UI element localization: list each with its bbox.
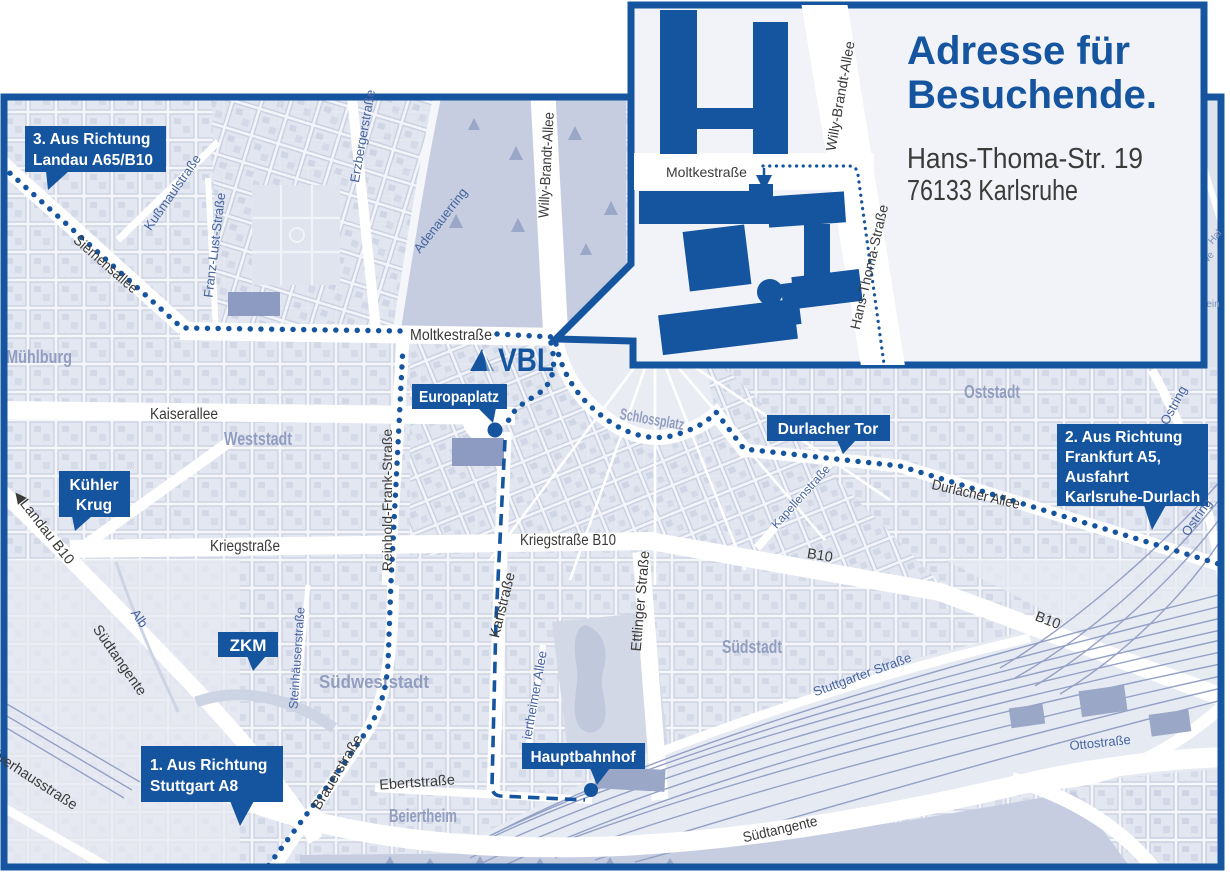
svg-text:VBL: VBL [498, 342, 554, 378]
svg-text:Krug: Krug [76, 497, 112, 514]
svg-text:2. Aus Richtung: 2. Aus Richtung [1065, 429, 1182, 446]
svg-text:Südstadt: Südstadt [722, 637, 782, 657]
svg-text:Beiertheim: Beiertheim [389, 806, 457, 826]
svg-text:Kriegstraße B10: Kriegstraße B10 [520, 532, 616, 549]
svg-text:1. Aus Richtung: 1. Aus Richtung [150, 757, 267, 774]
svg-text:Moltkestraße: Moltkestraße [410, 327, 492, 344]
svg-text:Reinhold-Frank-Straße: Reinhold-Frank-Straße [379, 429, 395, 572]
svg-text:Stuttgart A8: Stuttgart A8 [150, 778, 238, 795]
svg-text:Kriegstraße: Kriegstraße [210, 538, 280, 555]
svg-text:Südweststadt: Südweststadt [319, 672, 429, 692]
svg-text:Frankfurt A5,: Frankfurt A5, [1065, 449, 1161, 466]
svg-text:3. Aus Richtung: 3. Aus Richtung [33, 131, 150, 148]
svg-text:Weststadt: Weststadt [224, 429, 292, 449]
svg-text:Oststadt: Oststadt [964, 382, 1020, 402]
svg-text:Durlacher Tor: Durlacher Tor [778, 421, 879, 438]
svg-text:Karlsruhe-Durlach: Karlsruhe-Durlach [1065, 489, 1200, 506]
svg-text:Landau A65/B10: Landau A65/B10 [33, 152, 153, 169]
svg-text:Besuchende.: Besuchende. [907, 73, 1157, 117]
svg-text:ein: ein [1206, 299, 1219, 310]
svg-text:Moltkestraße: Moltkestraße [666, 164, 747, 180]
svg-text:Kaiserallee: Kaiserallee [150, 406, 218, 423]
svg-text:Hans-Thoma-Str. 19: Hans-Thoma-Str. 19 [907, 143, 1143, 175]
svg-text:ZKM: ZKM [230, 636, 267, 655]
svg-text:Europaplatz: Europaplatz [419, 389, 499, 406]
svg-text:Mühlburg: Mühlburg [6, 347, 72, 367]
svg-text:Kühler: Kühler [69, 477, 118, 494]
svg-text:Ausfahrt: Ausfahrt [1065, 469, 1129, 486]
svg-text:76133 Karlsruhe: 76133 Karlsruhe [907, 175, 1078, 207]
svg-text:Adresse für: Adresse für [907, 29, 1130, 73]
svg-text:Hauptbahnhof: Hauptbahnhof [530, 749, 636, 766]
